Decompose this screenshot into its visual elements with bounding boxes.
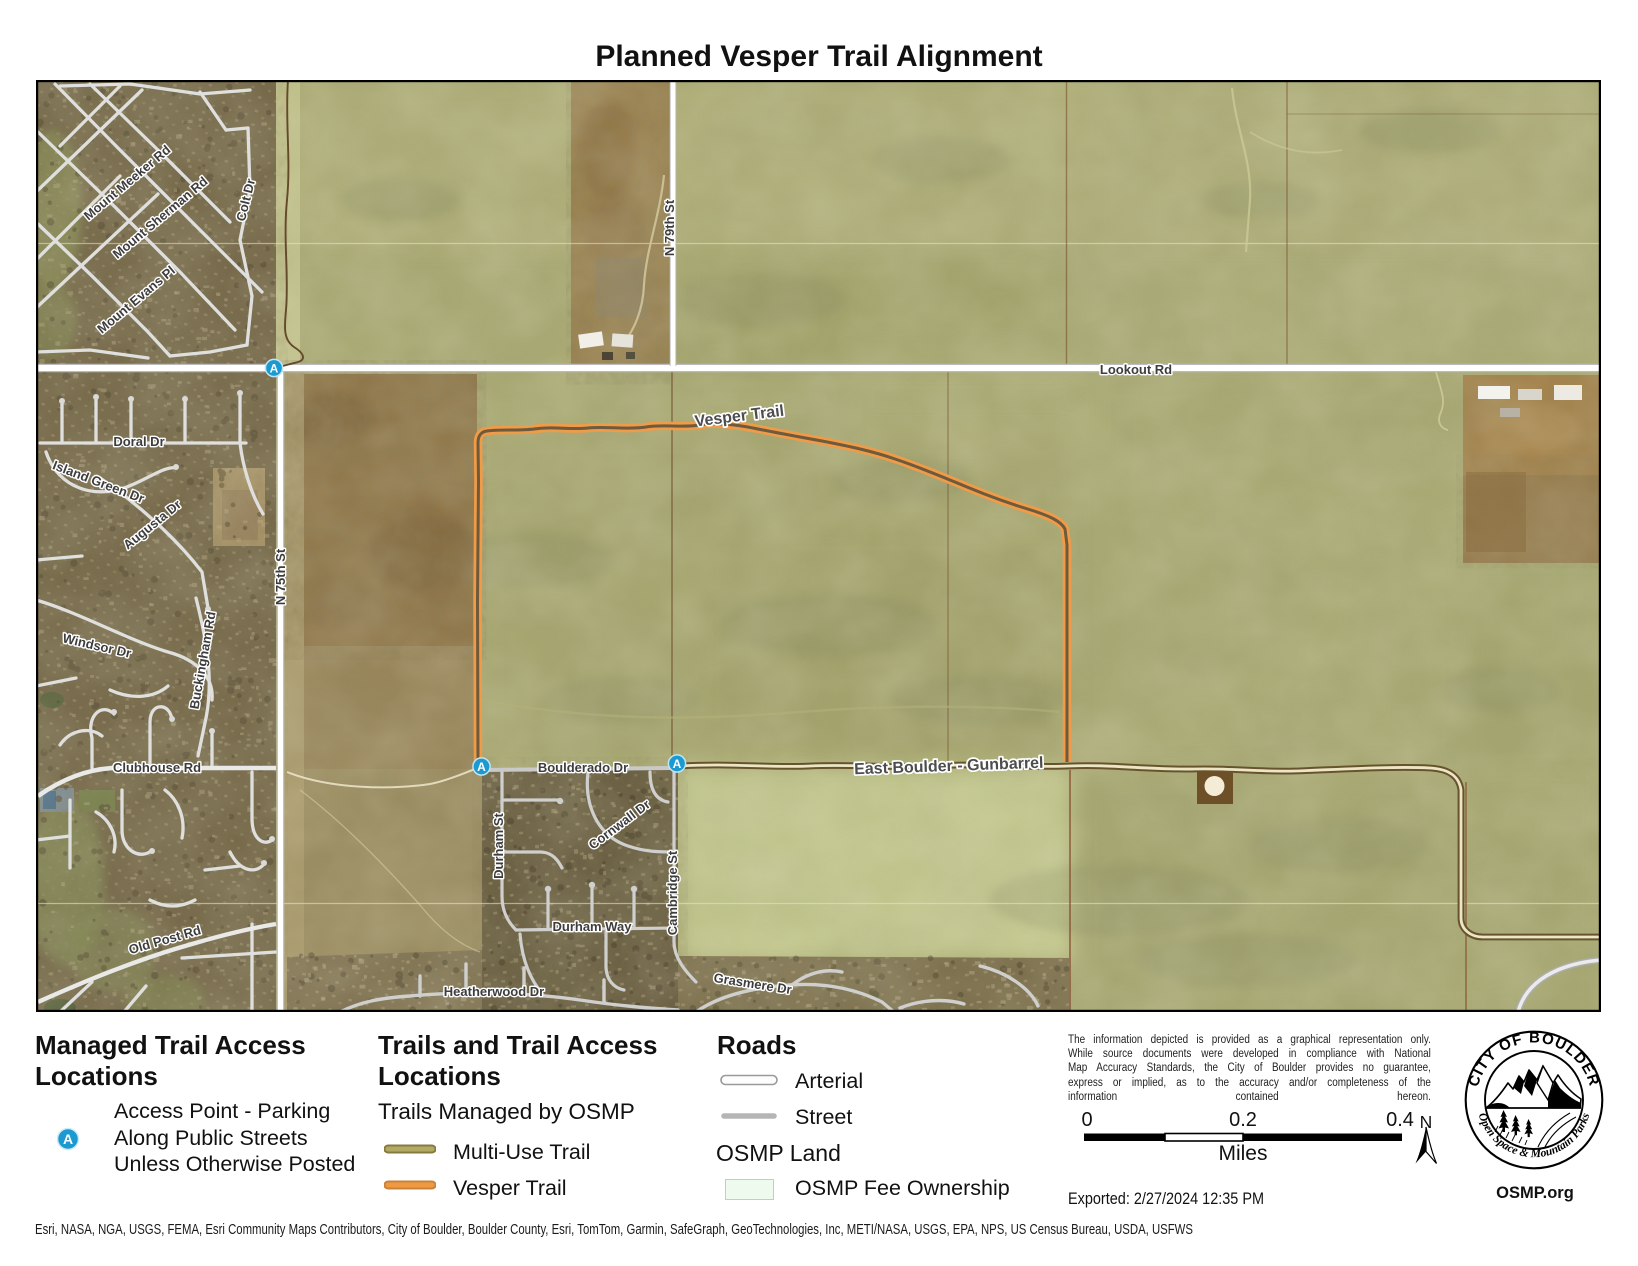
- svg-text:Heatherwood Dr: Heatherwood Dr: [444, 984, 544, 999]
- svg-text:Doral Dr: Doral Dr: [113, 434, 164, 449]
- svg-text:Durham St: Durham St: [491, 812, 506, 878]
- svg-text:N 75th St: N 75th St: [273, 548, 288, 605]
- svg-text:Durham Way: Durham Way: [553, 919, 633, 934]
- svg-text:N 79th St: N 79th St: [662, 199, 677, 256]
- svg-text:Lookout Rd: Lookout Rd: [1100, 362, 1172, 377]
- svg-text:Cambridge St: Cambridge St: [665, 850, 680, 935]
- svg-text:Clubhouse Rd: Clubhouse Rd: [113, 760, 201, 775]
- svg-text:A: A: [63, 1131, 73, 1147]
- svg-text:0: 0: [1081, 1109, 1092, 1131]
- svg-text:Miles: Miles: [1218, 1142, 1267, 1165]
- svg-text:0.2: 0.2: [1229, 1109, 1257, 1131]
- svg-text:A: A: [673, 757, 682, 771]
- svg-text:A: A: [270, 361, 279, 375]
- svg-text:A: A: [477, 760, 486, 774]
- svg-text:Boulderado Dr: Boulderado Dr: [538, 760, 628, 775]
